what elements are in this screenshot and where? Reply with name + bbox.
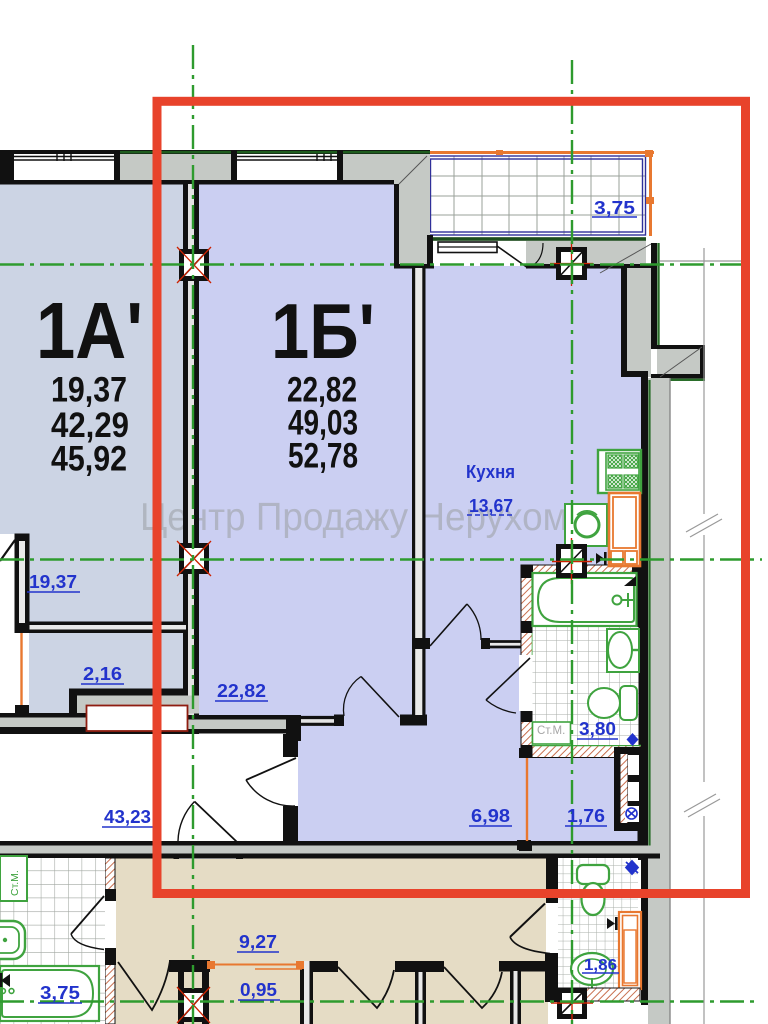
svg-text:1Б': 1Б' [271,287,375,375]
svg-text:3,75: 3,75 [594,198,635,218]
svg-text:2,16: 2,16 [83,664,122,684]
svg-text:9,27: 9,27 [239,932,277,952]
svg-text:Центр Продажу Нерухомості: Центр Продажу Нерухомості [140,496,632,539]
svg-text:Ст.М.: Ст.М. [537,725,565,737]
svg-text:0,95: 0,95 [240,980,277,1000]
svg-text:3,80: 3,80 [579,719,616,739]
svg-text:52,78: 52,78 [288,437,358,476]
svg-text:Ст.М.: Ст.М. [9,870,21,896]
svg-text:43,23: 43,23 [104,807,151,827]
svg-text:1,86: 1,86 [584,957,617,974]
svg-text:19,37: 19,37 [51,371,127,410]
svg-text:1А': 1А' [36,286,143,375]
svg-text:45,92: 45,92 [51,440,127,479]
svg-text:13,67: 13,67 [469,496,513,516]
svg-text:1,76: 1,76 [567,806,605,826]
svg-text:19,37: 19,37 [29,572,77,592]
svg-text:Кухня: Кухня [466,462,515,482]
svg-text:6,98: 6,98 [471,806,510,826]
svg-text:3,75: 3,75 [40,983,80,1003]
svg-text:22,82: 22,82 [217,681,266,701]
